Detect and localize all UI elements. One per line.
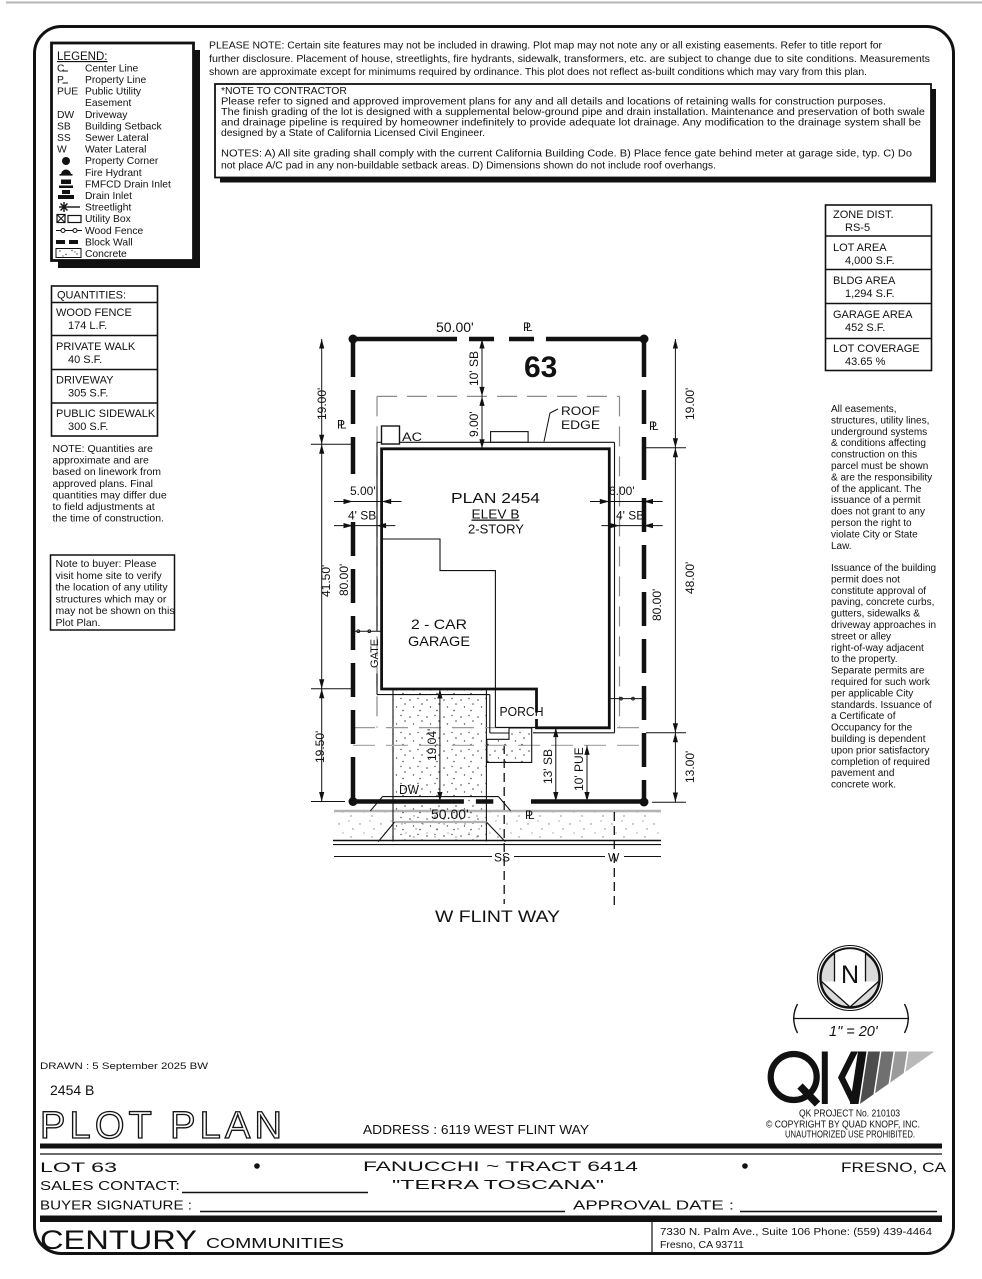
svg-text:based on linework from: based on linework from bbox=[53, 466, 162, 478]
svg-text:LEGEND:: LEGEND: bbox=[57, 51, 108, 63]
svg-text:building is dependent: building is dependent bbox=[831, 734, 926, 745]
svg-text:6.00': 6.00' bbox=[609, 484, 635, 498]
svg-text:PORCH: PORCH bbox=[500, 704, 544, 719]
svg-text:PL: PL bbox=[523, 320, 533, 334]
svg-text:Sewer Lateral: Sewer Lateral bbox=[85, 133, 149, 144]
svg-text:violate City or State: violate City or State bbox=[831, 529, 918, 540]
svg-text:COMMUNITIES: COMMUNITIES bbox=[206, 1236, 344, 1252]
svg-text:EDGE: EDGE bbox=[561, 418, 600, 432]
svg-text:permit does not: permit does not bbox=[831, 574, 900, 585]
svg-text:2 - CAR: 2 - CAR bbox=[411, 616, 467, 632]
svg-text:13.00': 13.00' bbox=[683, 751, 697, 783]
svg-text:Fire Hydrant: Fire Hydrant bbox=[85, 168, 142, 179]
svg-text:N: N bbox=[841, 961, 859, 989]
svg-text:to field adjustments at: to field adjustments at bbox=[53, 501, 155, 513]
svg-text:PUBLIC SIDEWALK: PUBLIC SIDEWALK bbox=[56, 408, 156, 420]
svg-text:paving, concrete curbs,: paving, concrete curbs, bbox=[831, 597, 934, 608]
svg-text:issuance of a permit: issuance of a permit bbox=[831, 495, 921, 506]
svg-text:WOOD FENCE: WOOD FENCE bbox=[56, 307, 132, 319]
svg-text:9.00': 9.00' bbox=[467, 411, 481, 437]
svg-text:W FLINT WAY: W FLINT WAY bbox=[435, 907, 560, 926]
svg-text:Easement: Easement bbox=[85, 98, 132, 109]
svg-text:GARAGE AREA: GARAGE AREA bbox=[833, 309, 913, 321]
svg-text:GARAGE: GARAGE bbox=[408, 633, 470, 649]
svg-text:the location of any utility: the location of any utility bbox=[56, 582, 169, 594]
svg-text:constitute approval of: constitute approval of bbox=[831, 586, 926, 597]
svg-text:driveway approaches in: driveway approaches in bbox=[831, 620, 936, 631]
svg-text:DRAWN : 5 September 2025 BW: DRAWN : 5 September 2025 BW bbox=[40, 1061, 208, 1072]
svg-text:4' SB: 4' SB bbox=[348, 509, 376, 523]
svg-text:PL: PL bbox=[337, 418, 347, 432]
svg-text:BLDG AREA: BLDG AREA bbox=[833, 275, 896, 287]
svg-text:50.00': 50.00' bbox=[431, 806, 469, 822]
svg-text:PUE: PUE bbox=[57, 87, 78, 98]
svg-text:person the right to: person the right to bbox=[831, 518, 912, 529]
svg-text:Drain Inlet: Drain Inlet bbox=[85, 191, 132, 202]
svg-text:7330 N. Palm Ave., Suite 106: 7330 N. Palm Ave., Suite 106 Phone: (559… bbox=[660, 1226, 932, 1238]
svg-text:DRIVEWAY: DRIVEWAY bbox=[56, 375, 114, 387]
svg-text:PRIVATE WALK: PRIVATE WALK bbox=[56, 341, 136, 353]
svg-text:4' SB: 4' SB bbox=[616, 509, 644, 523]
svg-text:BUYER SIGNATURE :: BUYER SIGNATURE : bbox=[40, 1199, 192, 1213]
svg-text:452 S.F.: 452 S.F. bbox=[845, 322, 885, 334]
svg-text:All easements,: All easements, bbox=[831, 404, 897, 415]
svg-text:1" = 20': 1" = 20' bbox=[829, 1024, 879, 1040]
svg-text:may not be shown on this: may not be shown on this bbox=[56, 605, 175, 617]
svg-text:FANUCCHI ~ TRACT 6414: FANUCCHI ~ TRACT 6414 bbox=[363, 1158, 638, 1174]
svg-text:FMFCD Drain Inlet: FMFCD Drain Inlet bbox=[85, 179, 171, 190]
svg-text:QK PROJECT No. 210103: QK PROJECT No. 210103 bbox=[799, 1109, 900, 1120]
svg-text:1,294 S.F.: 1,294 S.F. bbox=[845, 288, 895, 300]
svg-text:PLOT PLAN: PLOT PLAN bbox=[40, 1105, 286, 1147]
svg-text:4,000 S.F.: 4,000 S.F. bbox=[845, 255, 895, 267]
svg-text:completion of required: completion of required bbox=[831, 757, 930, 768]
svg-text:5.00': 5.00' bbox=[350, 484, 376, 498]
svg-text:approved plans. Final: approved plans. Final bbox=[53, 478, 153, 490]
svg-text:80.00': 80.00' bbox=[650, 589, 664, 621]
svg-text:not place A/C pad in any non-b: not place A/C pad in any non-buildable s… bbox=[221, 161, 716, 172]
svg-text:DW: DW bbox=[399, 782, 420, 797]
svg-text:required for such work: required for such work bbox=[831, 677, 931, 688]
svg-text:the time of construction.: the time of construction. bbox=[53, 513, 164, 525]
svg-text:Driveway: Driveway bbox=[85, 110, 128, 121]
svg-text:Issuance of the building: Issuance of the building bbox=[831, 563, 936, 574]
svg-text:RS-5: RS-5 bbox=[845, 222, 870, 234]
svg-text:does not grant to any: does not grant to any bbox=[831, 507, 925, 518]
svg-text:40 S.F.: 40 S.F. bbox=[68, 354, 102, 366]
svg-text:gutters, sidewalks &: gutters, sidewalks & bbox=[831, 609, 920, 620]
svg-text:to the property.: to the property. bbox=[831, 654, 898, 665]
svg-text:Concrete: Concrete bbox=[85, 249, 127, 260]
svg-text:approximate and are: approximate and are bbox=[53, 455, 149, 467]
svg-text:APPROVAL DATE :: APPROVAL DATE : bbox=[573, 1199, 734, 1213]
svg-text:standards. Issuance of: standards. Issuance of bbox=[831, 700, 932, 711]
svg-text:2-STORY: 2-STORY bbox=[468, 522, 524, 537]
svg-text:structures which may or: structures which may or bbox=[56, 593, 167, 605]
svg-text:street or alley: street or alley bbox=[831, 631, 891, 642]
svg-text:PLEASE NOTE: Certain site fea: PLEASE NOTE: Certain site features may n… bbox=[209, 41, 883, 52]
svg-text:visit home site to verify: visit home site to verify bbox=[56, 570, 163, 582]
svg-text:Center Line: Center Line bbox=[85, 63, 139, 74]
svg-text:*NOTE TO CONTRACTOR: *NOTE TO CONTRACTOR bbox=[221, 86, 347, 97]
svg-text:right-of-way adjacent: right-of-way adjacent bbox=[831, 643, 924, 654]
svg-text:13' SB: 13' SB bbox=[541, 749, 555, 784]
svg-text:48.00': 48.00' bbox=[683, 562, 697, 594]
svg-text:ZONE DIST.: ZONE DIST. bbox=[833, 209, 894, 221]
svg-text:upon prior satisfactory: upon prior satisfactory bbox=[831, 745, 929, 756]
svg-text:UNAUTHORIZED USE PROHIBITED.: UNAUTHORIZED USE PROHIBITED. bbox=[785, 1130, 915, 1141]
svg-text:further disclosure. Placement: further disclosure. Placement of house, … bbox=[209, 54, 930, 65]
svg-text:300 S.F.: 300 S.F. bbox=[68, 421, 108, 433]
svg-text:19.00': 19.00' bbox=[683, 388, 697, 420]
svg-text:41.50': 41.50' bbox=[319, 565, 333, 597]
svg-text:GATE: GATE bbox=[369, 639, 381, 668]
svg-text:pavement and: pavement and bbox=[831, 768, 894, 779]
svg-text:& conditions affecting: & conditions affecting bbox=[831, 438, 926, 449]
svg-text:and drainage pipeline is requi: and drainage pipeline is required by hom… bbox=[221, 118, 921, 129]
svg-text:PLAN 2454: PLAN 2454 bbox=[451, 490, 540, 507]
svg-text:80.00': 80.00' bbox=[337, 564, 351, 596]
svg-text:PL: PL bbox=[525, 808, 535, 822]
svg-text:PL: PL bbox=[649, 419, 659, 433]
svg-text:Plot Plan.: Plot Plan. bbox=[56, 617, 101, 629]
svg-text:Occupancy for the: Occupancy for the bbox=[831, 723, 913, 734]
svg-text:Block Wall: Block Wall bbox=[85, 237, 133, 248]
svg-text:ROOF: ROOF bbox=[561, 404, 600, 418]
svg-text:P: P bbox=[57, 75, 64, 86]
svg-text:structures, utility lines,: structures, utility lines, bbox=[831, 415, 929, 426]
svg-text:19.50': 19.50' bbox=[313, 731, 327, 763]
svg-text:10' PUE: 10' PUE bbox=[572, 747, 586, 791]
svg-text:NOTE: Quantities are: NOTE: Quantities are bbox=[53, 443, 154, 455]
svg-text:10' SB: 10' SB bbox=[467, 351, 481, 386]
svg-text:SS: SS bbox=[494, 851, 510, 865]
svg-text:63: 63 bbox=[524, 351, 557, 384]
svg-text:LOT AREA: LOT AREA bbox=[833, 242, 887, 254]
svg-text:Wood Fence: Wood Fence bbox=[85, 226, 143, 237]
svg-text:per applicable City: per applicable City bbox=[831, 688, 913, 699]
svg-text:DW: DW bbox=[57, 110, 74, 121]
svg-text:FRESNO, CA: FRESNO, CA bbox=[841, 1159, 947, 1175]
svg-text:Separate permits are: Separate permits are bbox=[831, 666, 925, 677]
svg-text:50.00': 50.00' bbox=[436, 319, 474, 335]
svg-text:The finish grading of the lot: The finish grading of the lot is designe… bbox=[221, 107, 925, 118]
svg-text:ADDRESS : 6119 WEST FLINT WAY: ADDRESS : 6119 WEST FLINT WAY bbox=[363, 1122, 589, 1137]
svg-text:SS: SS bbox=[57, 133, 71, 144]
svg-text:Please refer to signed and app: Please refer to signed and approved impr… bbox=[221, 97, 886, 108]
svg-text:Property Line: Property Line bbox=[85, 75, 147, 86]
svg-text:W: W bbox=[57, 145, 67, 156]
svg-text:Note to buyer: Please: Note to buyer: Please bbox=[56, 558, 157, 570]
svg-text:305 S.F.: 305 S.F. bbox=[68, 388, 108, 400]
svg-text:QUANTITIES:: QUANTITIES: bbox=[57, 290, 126, 302]
svg-text:& are the responsibility: & are the responsibility bbox=[831, 472, 932, 483]
svg-text:174 L.F.: 174 L.F. bbox=[68, 320, 107, 332]
svg-text:CENTURY: CENTURY bbox=[40, 1225, 197, 1255]
svg-text:C: C bbox=[57, 63, 65, 74]
svg-text:LOT COVERAGE: LOT COVERAGE bbox=[833, 343, 920, 355]
svg-text:NOTES: A) All site grading sh: NOTES: A) All site grading shall comply … bbox=[221, 149, 912, 160]
svg-text:construction on this: construction on this bbox=[831, 450, 917, 461]
svg-text:quantities may differ due: quantities may differ due bbox=[53, 489, 167, 501]
svg-text:Utility Box: Utility Box bbox=[85, 214, 132, 225]
svg-text:Streetlight: Streetlight bbox=[85, 203, 132, 214]
svg-text:Property Corner: Property Corner bbox=[85, 156, 159, 167]
svg-text:43.65 %: 43.65 % bbox=[845, 356, 886, 368]
svg-text:of the applicant. The: of the applicant. The bbox=[831, 484, 922, 495]
svg-text:ELEV B: ELEV B bbox=[472, 507, 520, 522]
svg-text:Law.: Law. bbox=[831, 541, 852, 552]
svg-text:LOT 63: LOT 63 bbox=[40, 1159, 117, 1175]
svg-text:a Certificate of: a Certificate of bbox=[831, 711, 896, 722]
svg-text:Fresno, CA 93711: Fresno, CA 93711 bbox=[660, 1239, 744, 1251]
svg-text:Water Lateral: Water Lateral bbox=[85, 145, 146, 156]
svg-text:Building Setback: Building Setback bbox=[85, 121, 163, 132]
svg-text:19.00': 19.00' bbox=[315, 388, 329, 420]
svg-text:19.04': 19.04' bbox=[425, 729, 439, 761]
svg-text:SB: SB bbox=[57, 121, 71, 132]
svg-text:parcel must be shown: parcel must be shown bbox=[831, 461, 928, 472]
svg-text:AC: AC bbox=[402, 430, 422, 444]
svg-text:Public Utility: Public Utility bbox=[85, 87, 142, 98]
svg-text:"TERRA TOSCANA": "TERRA TOSCANA" bbox=[392, 1177, 605, 1192]
svg-text:concrete work.: concrete work. bbox=[831, 780, 896, 791]
svg-text:2454 B: 2454 B bbox=[50, 1082, 94, 1098]
svg-text:SALES CONTACT:: SALES CONTACT: bbox=[40, 1179, 180, 1193]
svg-text:shown are approximate except f: shown are approximate except for minimum… bbox=[209, 67, 867, 78]
svg-text:underground systems: underground systems bbox=[831, 427, 927, 438]
svg-text:designed by a State of Califor: designed by a State of California Licens… bbox=[221, 128, 485, 139]
